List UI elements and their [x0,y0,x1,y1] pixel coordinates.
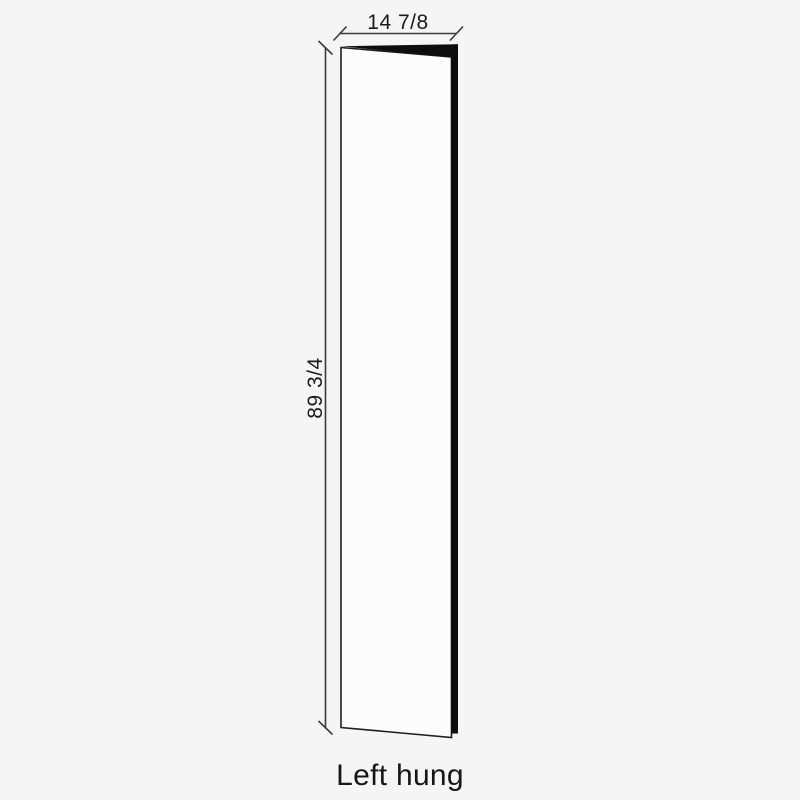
door-diagram: 14 7/8 89 3/4 Left hung [0,0,800,800]
door-opening-edge [451,44,458,733]
diagram-caption: Left hung [336,759,464,792]
width-dimension-label: 14 7/8 [367,11,428,34]
door-panel-face [341,48,452,738]
height-dimension-label: 89 3/4 [304,357,327,418]
door-diagram-canvas: 14 7/8 89 3/4 Left hung [0,0,800,800]
